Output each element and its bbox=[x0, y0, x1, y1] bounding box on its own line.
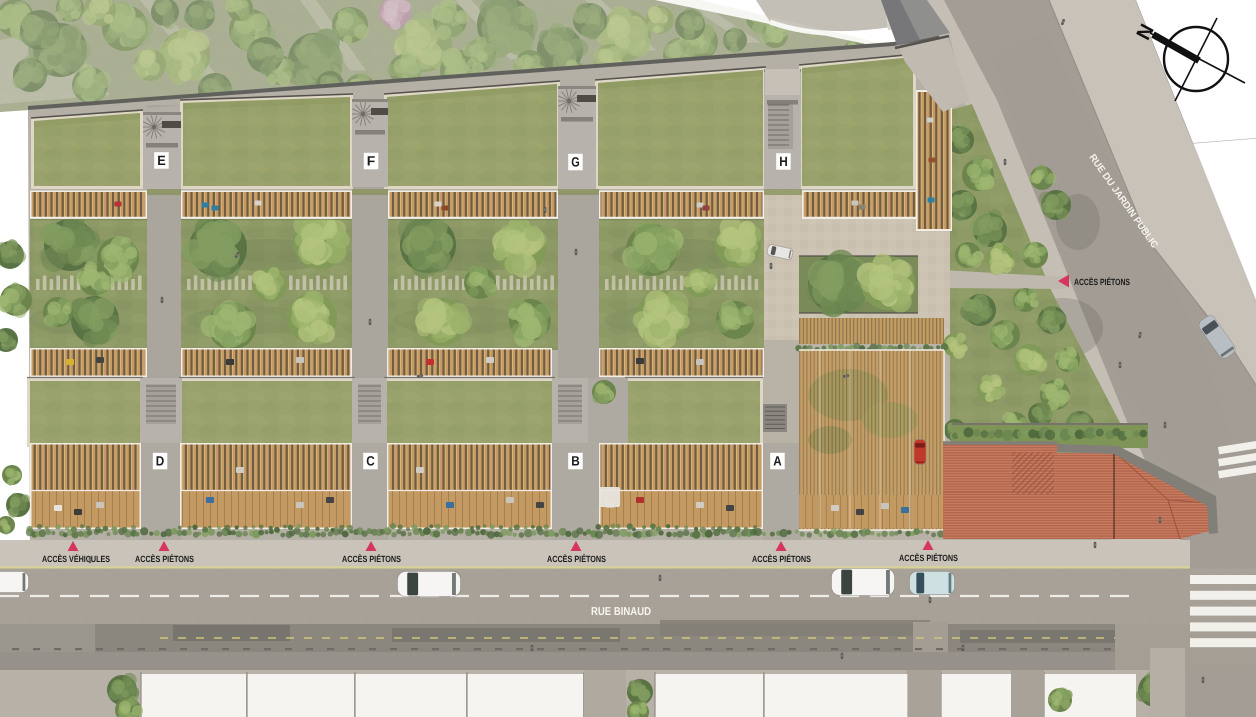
svg-text:RUE BINAUD: RUE BINAUD bbox=[591, 606, 651, 618]
svg-text:F: F bbox=[367, 153, 376, 168]
svg-text:G: G bbox=[571, 154, 580, 169]
svg-text:D: D bbox=[156, 453, 165, 468]
svg-text:ACCÈS PIÉTONS: ACCÈS PIÉTONS bbox=[1074, 277, 1130, 287]
svg-text:C: C bbox=[366, 453, 375, 468]
svg-text:B: B bbox=[571, 453, 580, 468]
svg-text:ACCÈS PIÉTONS: ACCÈS PIÉTONS bbox=[899, 553, 958, 563]
svg-text:ACCÈS VÉHICULES: ACCÈS VÉHICULES bbox=[42, 554, 110, 564]
svg-text:ACCÈS PIÉTONS: ACCÈS PIÉTONS bbox=[547, 554, 606, 564]
svg-text:ACCÈS PIÉTONS: ACCÈS PIÉTONS bbox=[752, 554, 811, 564]
svg-text:E: E bbox=[157, 153, 166, 168]
svg-text:ACCÈS PIÉTONS: ACCÈS PIÉTONS bbox=[342, 554, 401, 564]
svg-text:H: H bbox=[779, 154, 788, 169]
svg-text:ACCÈS PIÉTONS: ACCÈS PIÉTONS bbox=[135, 554, 194, 564]
svg-text:A: A bbox=[773, 453, 782, 468]
